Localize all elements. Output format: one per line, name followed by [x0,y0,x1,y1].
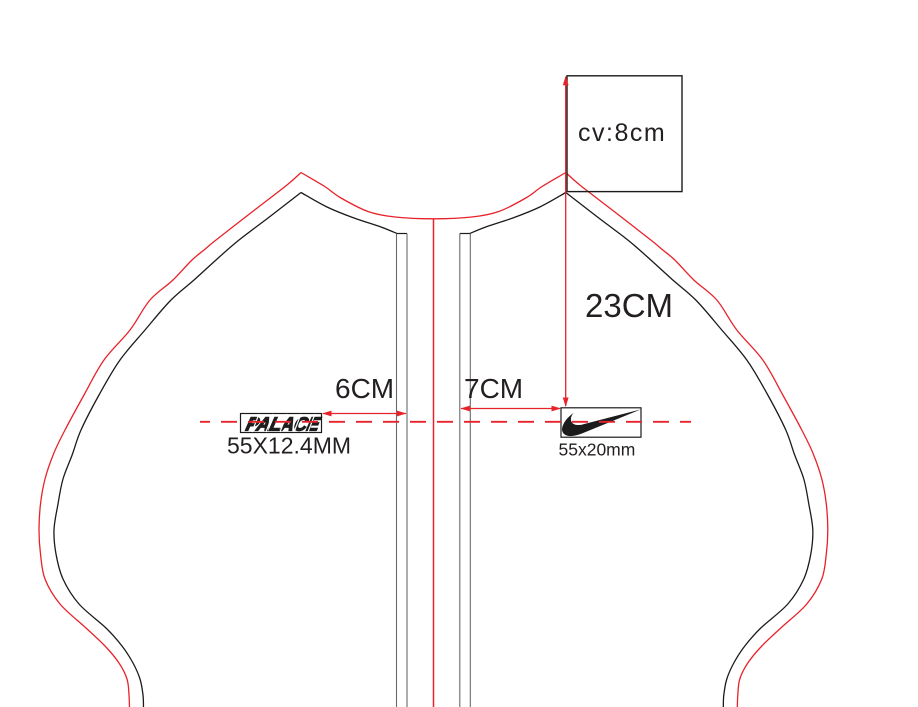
svg-text:cv:8cm: cv:8cm [578,119,666,147]
svg-text:7CM: 7CM [464,373,523,404]
svg-text:55x20mm: 55x20mm [559,440,636,460]
svg-text:55X12.4MM: 55X12.4MM [227,433,351,459]
svg-text:23CM: 23CM [585,287,673,324]
svg-text:6CM: 6CM [335,373,394,404]
